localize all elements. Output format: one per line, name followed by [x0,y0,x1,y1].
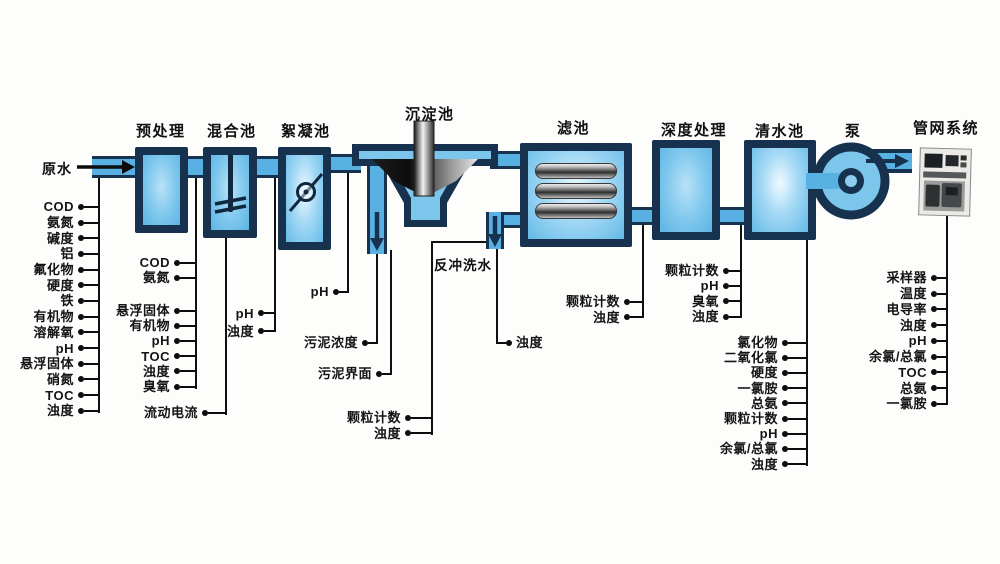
stage-title-sedimentation: 沉淀池 [405,103,455,124]
sensor-label: pH [760,427,778,440]
sensor-item: 悬浮固体 [20,356,99,372]
device-part [946,187,958,195]
sensor-connector [84,206,99,208]
sensor-item: 溶解氧 [20,325,99,341]
sensor-label: 臭氧 [143,380,170,393]
sensor-label: 余氯/总氯 [869,350,927,363]
sensor-connector [788,448,807,450]
sensor-item: 臭氧 [665,294,741,309]
sensor-connector [937,403,947,405]
sensor-connector [84,316,99,318]
sedimentation-shaft [414,121,434,196]
backwash-sensor-line [431,241,433,435]
sensor-connector [630,301,643,303]
flocculation-sensor-line [347,172,349,293]
sensor-label: 浊度 [593,311,620,324]
device-sampler-unit [923,180,965,211]
sensor-item: pH [116,333,196,348]
device-screen [945,155,958,166]
sensor-item: 硬度 [20,277,99,293]
sensor-item: 污泥界面 [318,366,391,382]
sensor-label: 总氨 [751,397,778,410]
sensor-connector [937,293,947,295]
sensor-item: 浊度 [869,317,947,333]
sensor-label: 总氨 [900,382,927,395]
sensor-item: 有机物 [20,309,99,325]
sensor-label: 铁 [60,294,74,307]
sensor-item: 颗粒计数 [566,294,643,310]
stage-title-pretreatment: 预处理 [136,120,186,141]
sensor-label: 温度 [900,287,927,300]
sensor-item: 浊度 [227,322,275,340]
sensor-label: 浊度 [900,319,927,332]
sensor-item: 污泥浓度 [304,335,377,351]
mixing-tank [203,147,257,238]
sensor-label: pH [236,307,254,320]
raw-water-label: 原水 [42,159,72,179]
sensor-connector [84,410,99,412]
sensor-label: 悬浮固体 [116,304,170,317]
sensor-item: 氨氮 [140,270,196,285]
sensor-label: 二氧化氯 [724,351,778,364]
sensor-label: 有机物 [129,319,170,332]
pretreatment-sensors-b: 悬浮固体有机物pHTOC浊度臭氧 [116,303,196,394]
sensor-dot-icon [506,340,512,346]
sensor-label: 浊度 [751,458,778,471]
sensor-item: 硬度 [720,365,807,380]
sensor-item: COD [140,255,196,270]
device-button [960,162,966,167]
sensor-item: TOC [20,387,99,403]
sensor-item: 氨氮 [20,215,99,231]
streaming-current-sensor: 流动电流 [144,405,226,421]
sludge-concentration-line [376,250,378,344]
sensor-label: 溶解氧 [33,326,74,339]
stage-title-mixing: 混合池 [207,120,257,141]
sensor-item: 铁 [20,293,99,309]
sensor-item: 流动电流 [144,405,226,421]
filter-media-cylinder [535,203,617,219]
sensor-label: 硝氮 [47,373,74,386]
sensor-connector [788,357,807,359]
sensor-connector [788,342,807,344]
sensor-label: 颗粒计数 [665,264,719,277]
sensor-connector [937,356,947,358]
sensor-connector [84,378,99,380]
sludge-concentration-sensor: 污泥浓度 [304,335,377,351]
sensor-label: 氨氮 [143,271,170,284]
sensor-connector [264,330,275,332]
sensor-label: 有机物 [33,310,74,323]
sensor-label: 颗粒计数 [347,411,401,424]
stage-title-flocculation: 絮凝池 [281,120,331,141]
sensor-label: 碱度 [47,232,74,245]
sensor-connector [84,331,99,333]
stage-title-advanced: 深度处理 [661,119,727,140]
sensor-connector [84,394,99,396]
sensor-connector [411,417,432,419]
sensor-label: pH [909,334,927,347]
sensor-item: pH [869,333,947,349]
filter-tank [520,143,632,247]
sensor-item: 一氯胺 [720,381,807,396]
sensor-connector [788,387,807,389]
sensor-item: 浊度 [720,457,807,472]
device-button [961,155,967,160]
sensor-label: 颗粒计数 [566,295,620,308]
sensor-connector [84,347,99,349]
sensor-connector [84,284,99,286]
sensor-label: 氯化物 [737,336,778,349]
sensor-item: pH [720,426,807,441]
sensor-label: 氨氮 [47,216,74,229]
sensor-item: 铝 [20,246,99,262]
sensor-label: pH [311,285,329,298]
sensor-label: 硬度 [751,366,778,379]
sensor-label: 臭氧 [692,295,719,308]
sensor-label: 污泥浓度 [304,336,358,349]
sensor-connector [339,291,348,293]
raw-water-inlet-pipe [92,156,138,178]
sensor-connector [729,285,741,287]
sensor-connector [937,324,947,326]
sensor-connector [84,222,99,224]
sensor-label: TOC [141,350,170,363]
sensor-connector [264,312,275,314]
sensor-item: 浊度 [20,403,99,419]
stage-title-network: 管网系统 [913,117,979,138]
sensor-item: 悬浮固体 [116,303,196,318]
backwash-water-label: 反冲洗水 [434,254,492,274]
sensor-connector [937,387,947,389]
sensor-label: 浊度 [692,310,719,323]
sensor-connector [180,277,196,279]
sensor-item: TOC [116,349,196,364]
sludge-interface-sensor: 污泥界面 [318,366,391,382]
advanced-treatment-sensors: 颗粒计数pH臭氧浊度 [665,263,741,324]
clear-water-sensors: 氯化物二氧化氯硬度一氯胺总氨颗粒计数pH余氯/总氯浊度 [720,335,807,472]
sensor-connector [729,270,741,272]
sensor-label: 浊度 [374,427,401,440]
sensor-connector [84,237,99,239]
stage-title-filter: 滤池 [557,117,590,138]
sensor-connector [84,253,99,255]
sensor-connector [788,433,807,435]
sensor-item: 氟化物 [20,262,99,278]
sedimentation-drain-pipe [367,166,387,254]
raw-water-sensors: COD氨氮碱度铝氟化物硬度铁有机物溶解氧pH悬浮固体硝氮TOC浊度 [20,199,99,419]
pump-outlet-arrow-icon [866,154,909,168]
sensor-label: COD [140,256,170,269]
sensor-item: 浊度 [497,335,543,351]
network-analyzer-device [918,147,972,216]
sensor-connector [937,277,947,279]
sensor-connector [788,418,807,420]
stage-title-pump: 泵 [845,120,862,141]
sensor-connector [729,300,741,302]
sensor-label: 电导率 [886,303,927,316]
sensor-connector [180,325,196,327]
device-part [925,185,940,207]
sensor-item: 余氯/总氯 [869,349,947,365]
sensor-connector [368,342,377,344]
sensor-label: TOC [45,389,74,402]
sensor-label: 浊度 [227,325,254,338]
settling-cone [372,159,478,193]
sensor-label: pH [152,334,170,347]
sensor-connector [937,340,947,342]
sensor-label: 悬浮固体 [20,357,74,370]
sensor-label: pH [56,342,74,355]
network-sensors: 采样器温度电导率浊度pH余氯/总氯TOC总氨一氯胺 [869,270,947,412]
sensor-connector [180,340,196,342]
sensor-label: 浊度 [47,404,74,417]
sensor-item: 浊度 [347,426,432,442]
sensor-item: 颗粒计数 [347,410,432,426]
sensor-item: 二氧化氯 [720,350,807,365]
mixing-sensors: pH浊度 [227,304,275,340]
sensor-item: 一氯胺 [869,396,947,412]
sensor-connector [937,308,947,310]
sensor-item: 余氯/总氯 [720,441,807,456]
sensor-item: pH [227,304,275,322]
sensor-connector [84,269,99,271]
sensor-label: 浊度 [143,365,170,378]
sensor-label: 流动电流 [144,406,198,419]
pretreatment-tank [135,147,188,233]
sensor-label: 氟化物 [33,263,74,276]
sensor-connector [84,300,99,302]
sensor-label: 采样器 [886,271,927,284]
sensor-connector [180,370,196,372]
sensor-item: 浊度 [566,310,643,326]
filter-sensors: 颗粒计数浊度 [566,294,643,325]
sensor-label: 一氯胺 [737,382,778,395]
sensor-item: pH [665,278,741,293]
sensor-connector [180,386,196,388]
sensor-item: 有机物 [116,318,196,333]
sludge-interface-line [390,250,392,375]
sensor-label: 颗粒计数 [724,412,778,425]
settled-water-sensor-line [496,246,498,344]
sensor-connector [411,432,432,434]
pretreatment-sensors-a: COD氨氮 [140,255,196,285]
filter-backwash-pipe [486,212,504,249]
sensor-connector [180,355,196,357]
sensor-item: COD [20,199,99,215]
sensor-connector [788,372,807,374]
sensor-item: TOC [869,365,947,381]
sensor-connector [729,316,741,318]
stage-title-clearwater: 清水池 [755,120,805,141]
sensor-item: 碱度 [20,230,99,246]
device-label-strip [923,171,966,178]
sensor-item: 采样器 [869,270,947,286]
sensor-label: 污泥界面 [318,367,372,380]
sensor-label: pH [701,279,719,292]
sensor-connector [788,402,807,404]
sensor-item: pH [20,340,99,356]
sensor-connector [497,342,506,344]
sensor-connector [180,262,196,264]
sensor-label: 铝 [60,247,74,260]
sensor-item: 浊度 [116,364,196,379]
settled-water-sensor: 浊度 [497,335,543,351]
device-screen [924,153,942,167]
sensor-connector [630,316,643,318]
clear-water-tank [744,140,816,240]
sensor-item: 总氨 [720,396,807,411]
filter-media-cylinder [535,163,617,179]
sensor-connector [208,412,226,414]
water-treatment-process-diagram: 预处理 混合池 絮凝池 沉淀池 滤池 深度处理 清水池 泵 管网系统 原水 反冲… [0,0,1000,564]
flocculation-sensors: pH [311,284,348,300]
sensor-item: 电导率 [869,302,947,318]
sensor-label: 余氯/总氯 [720,442,778,455]
sensor-item: 总氨 [869,380,947,396]
sensor-label: COD [44,200,74,213]
sensor-connector [382,373,391,375]
backwash-sensor-line-h [431,241,489,243]
sensor-label: 浊度 [516,336,543,349]
sensor-label: TOC [898,366,927,379]
sensor-connector [180,310,196,312]
sensor-connector [788,463,807,465]
sensor-item: pH [311,284,348,300]
sensor-item: 氯化物 [720,335,807,350]
sensor-connector [84,363,99,365]
backwash-sensors: 颗粒计数浊度 [347,410,432,441]
flocculation-tank [278,147,331,250]
filter-media-cylinder [535,183,617,199]
sensor-label: 硬度 [47,279,74,292]
sensor-item: 颗粒计数 [720,411,807,426]
sensor-connector [937,371,947,373]
advanced-treatment-tank [652,140,720,240]
sensor-item: 浊度 [665,309,741,324]
sensor-label: 一氯胺 [886,397,927,410]
sensor-item: 颗粒计数 [665,263,741,278]
sensor-item: 温度 [869,286,947,302]
sensor-item: 硝氮 [20,372,99,388]
sensor-item: 臭氧 [116,379,196,394]
